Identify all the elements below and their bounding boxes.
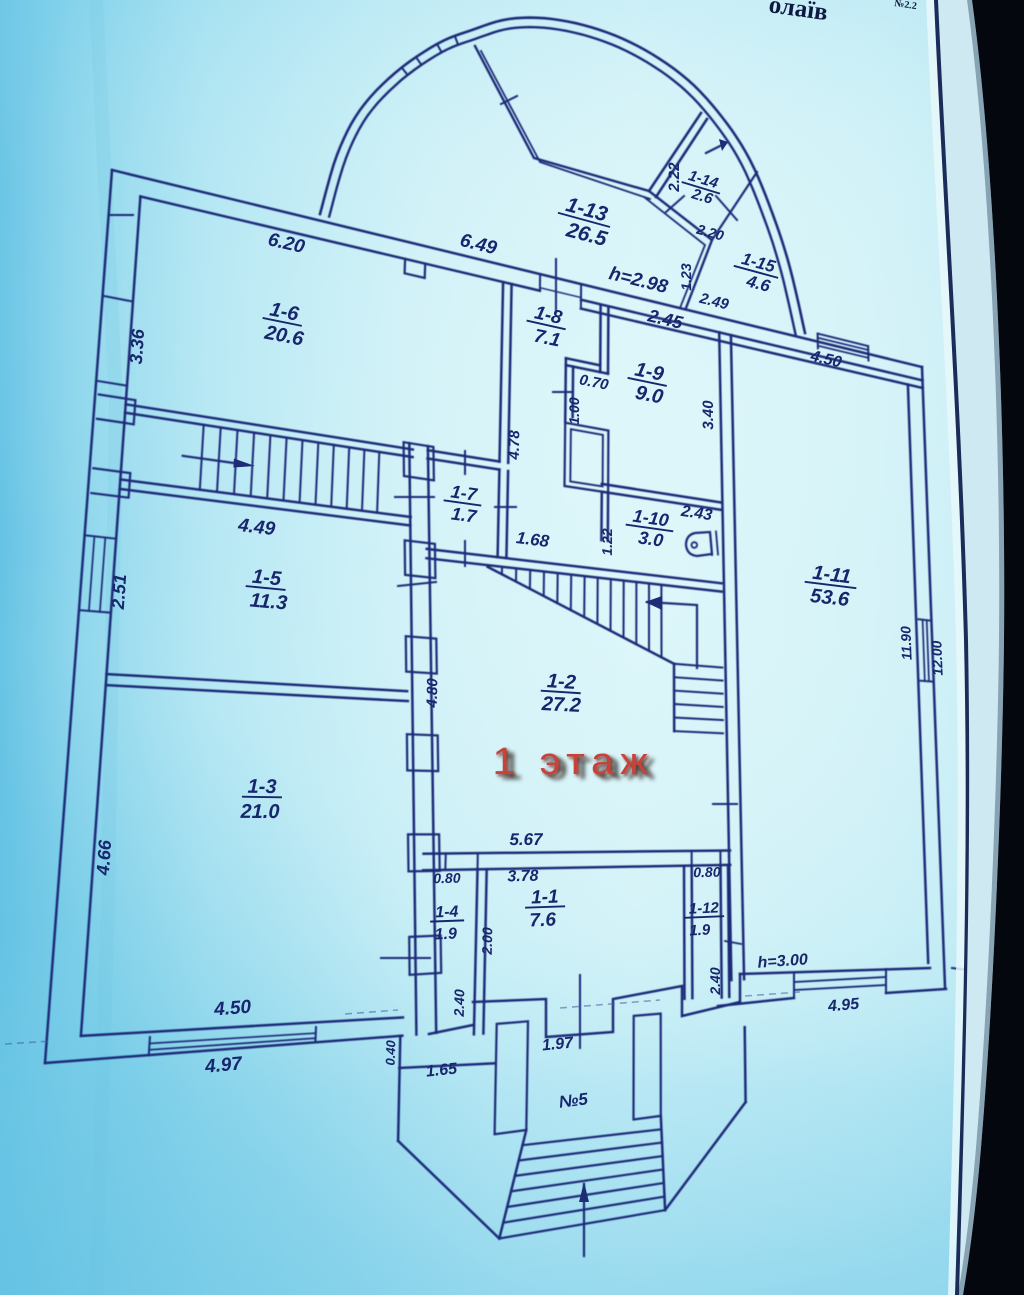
svg-text:№5: №5	[558, 1089, 590, 1111]
svg-text:12.00: 12.00	[928, 640, 945, 676]
svg-text:0.80: 0.80	[433, 870, 461, 887]
svg-text:2.40: 2.40	[451, 989, 468, 1018]
svg-text:1.9: 1.9	[689, 921, 711, 939]
svg-text:3.36: 3.36	[126, 327, 148, 364]
svg-text:4.78: 4.78	[506, 430, 524, 461]
svg-text:3.0: 3.0	[637, 528, 664, 551]
svg-text:h=3.00: h=3.00	[757, 951, 808, 971]
svg-text:4.95: 4.95	[826, 996, 861, 1016]
svg-text:0.40: 0.40	[383, 1039, 399, 1066]
svg-text:4.66: 4.66	[93, 838, 115, 876]
svg-text:1.9: 1.9	[434, 925, 457, 943]
svg-text:11.3: 11.3	[249, 589, 288, 614]
svg-text:1.97: 1.97	[541, 1034, 575, 1054]
svg-text:1 этаж: 1 этаж	[492, 740, 654, 782]
svg-text:5.67: 5.67	[509, 830, 544, 849]
svg-text:1.23: 1.23	[678, 263, 694, 291]
svg-text:1.00: 1.00	[566, 397, 582, 425]
svg-text:4.80: 4.80	[424, 677, 442, 708]
svg-text:2.40: 2.40	[707, 967, 723, 996]
svg-text:2.00: 2.00	[479, 927, 496, 956]
svg-text:0.80: 0.80	[693, 864, 721, 881]
svg-text:1-3: 1-3	[247, 776, 276, 798]
svg-text:11.90: 11.90	[897, 626, 914, 661]
svg-text:2.51: 2.51	[108, 573, 130, 610]
svg-text:1-4: 1-4	[435, 904, 459, 922]
svg-text:53.6: 53.6	[809, 585, 851, 611]
svg-text:21.0: 21.0	[240, 801, 280, 823]
svg-text:7.6: 7.6	[529, 909, 557, 931]
svg-text:4.97: 4.97	[203, 1053, 244, 1078]
svg-text:1-12: 1-12	[688, 899, 719, 917]
svg-text:3.78: 3.78	[507, 868, 539, 886]
svg-text:4.49: 4.49	[236, 515, 277, 540]
svg-text:3.40: 3.40	[700, 400, 717, 430]
svg-text:1.7: 1.7	[450, 504, 478, 527]
svg-text:1-2: 1-2	[546, 670, 576, 694]
svg-text:1-1: 1-1	[531, 887, 559, 909]
svg-text:4.50: 4.50	[212, 997, 252, 1021]
svg-text:1.22: 1.22	[599, 528, 615, 556]
svg-text:2.22: 2.22	[666, 162, 683, 193]
svg-text:1.65: 1.65	[425, 1060, 459, 1080]
svg-text:27.2: 27.2	[540, 693, 581, 717]
